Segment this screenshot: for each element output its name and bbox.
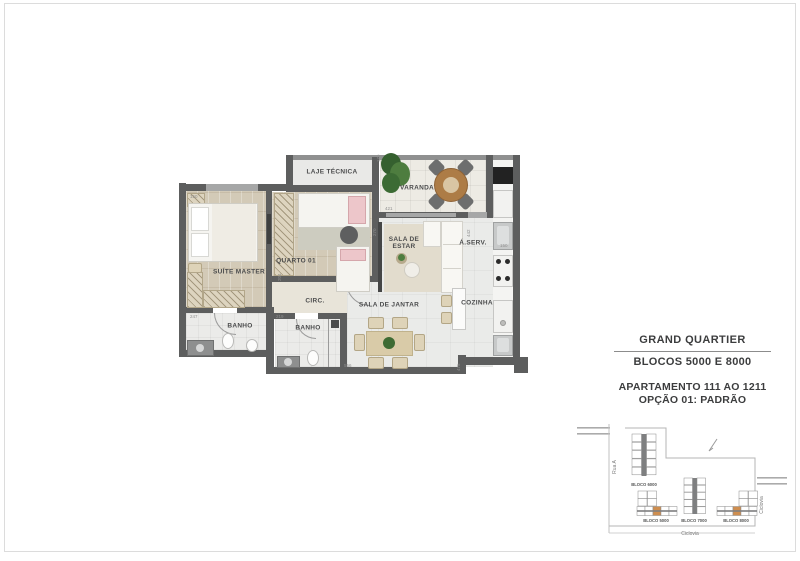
- banho1-toilet: [222, 333, 234, 349]
- suite-wardrobe-left: [187, 272, 203, 308]
- dining-centerpiece: [383, 337, 395, 349]
- burner-3: [496, 276, 501, 281]
- bloco-8000-label: BLOCO 8000: [723, 518, 749, 523]
- dining-chair-3: [368, 357, 384, 369]
- bloco-7000-label: BLOCO 7000: [681, 518, 707, 523]
- label-suite-master: SUÍTE MASTER: [213, 269, 265, 276]
- kitchen-cabinet: [493, 190, 513, 218]
- dim-179: 179: [376, 154, 381, 162]
- north-arrow-icon: [709, 439, 717, 451]
- plant-leaf-3: [382, 173, 400, 193]
- estar-tv-panel: [378, 222, 382, 292]
- fine-print-line: [757, 483, 787, 485]
- suite-wardrobe-bottom: [203, 290, 245, 308]
- project-title: GRAND QUARTIER: [600, 334, 785, 346]
- fine-print-line: [577, 433, 610, 435]
- window-suite: [206, 184, 258, 191]
- dining-chair-2: [392, 317, 408, 329]
- bloco-8000: [717, 491, 758, 516]
- bloco-5000-label: BLOCO 5000: [643, 518, 669, 523]
- banho2-shower-head: [331, 320, 339, 328]
- banho1-bidet: [246, 339, 258, 352]
- banho2-toilet: [307, 350, 319, 366]
- varanda-table-center: [443, 177, 459, 193]
- blocks-line: BLOCOS 5000 E 8000: [600, 356, 785, 368]
- dining-chair-6: [414, 334, 425, 351]
- plan-sheet: LAJE TÉCNICA VARANDA SUÍTE MASTER QUARTO…: [0, 0, 800, 561]
- dim-556: 556: [344, 363, 352, 368]
- dim-150-suite: 150: [190, 194, 198, 199]
- quarto-desk-chair: [340, 226, 358, 244]
- suite-tv-panel: [267, 214, 271, 244]
- label-varanda: VARANDA: [400, 185, 434, 192]
- dim-204: 204: [277, 273, 282, 281]
- dim-247: 247: [190, 314, 198, 319]
- dim-421: 421: [385, 206, 393, 211]
- dim-475: 475: [456, 363, 461, 371]
- site-plan: Rua A Ciclovia Ciclovia BLOCO 6000 BLOCO…: [575, 415, 800, 545]
- suite-pillow-1: [191, 207, 209, 231]
- kitchen-stool-1: [441, 295, 452, 307]
- label-circ: CIRC.: [305, 298, 324, 305]
- fine-print-line: [577, 427, 610, 429]
- fine-print-line: [757, 477, 787, 479]
- wall-left: [179, 183, 186, 357]
- kitchen-stool-2: [441, 312, 452, 324]
- quarto-pillow-2: [340, 249, 366, 261]
- wall-suite-quarto: [266, 191, 272, 307]
- label-banho-social: BANHO: [295, 325, 320, 332]
- wall-corner-block: [514, 357, 528, 373]
- bloco-6000: [632, 434, 656, 476]
- estar-plant: [398, 254, 405, 261]
- wall-varanda-kitchen: [486, 155, 493, 218]
- wall-right: [513, 155, 520, 362]
- wall-laje-left: [286, 155, 293, 190]
- oven: [493, 300, 513, 333]
- wall-laje-bottom: [286, 185, 378, 192]
- dim-270: 270: [372, 228, 377, 236]
- bloco-7000: [684, 478, 706, 514]
- street-rua-a: Rua A: [612, 460, 618, 474]
- label-sala-de-estar: SALA DE ESTAR: [387, 236, 421, 250]
- burner-1: [496, 259, 501, 264]
- kitchen-sink-basin: [497, 338, 509, 352]
- burner-2: [505, 259, 510, 264]
- title-divider: [614, 351, 771, 352]
- wall-bottom-main: [266, 367, 466, 374]
- estar-sofa: [441, 221, 463, 293]
- sliding-door-varanda: [386, 213, 456, 217]
- kitchen-peninsula: [452, 288, 466, 330]
- estar-chaise: [423, 221, 441, 247]
- dining-chair-4: [392, 357, 408, 369]
- kitchen-appliance-black: [493, 167, 513, 184]
- banho2-sink: [284, 358, 292, 366]
- label-laje-tecnica: LAJE TÉCNICA: [307, 169, 358, 176]
- cicloway-bottom-label: Ciclovia: [681, 531, 699, 537]
- dining-chair-5: [354, 334, 365, 351]
- dining-chair-1: [368, 317, 384, 329]
- dim-150-cozinha: 150: [500, 243, 508, 248]
- cicloway-right-label: Ciclovia: [759, 496, 765, 514]
- dim-219: 219: [276, 314, 284, 319]
- sofa-seam-2: [443, 268, 461, 269]
- oven-knob: [500, 320, 506, 326]
- dim-442: 442: [466, 229, 471, 237]
- bloco-5000: [637, 491, 677, 516]
- apartment-line: APARTAMENTO 111 AO 1211: [600, 381, 785, 393]
- bloco-6000-label: BLOCO 6000: [631, 482, 657, 487]
- estar-coffee-table: [404, 262, 420, 278]
- label-a-serv: Á.SERV.: [459, 240, 486, 247]
- suite-blanket: [212, 204, 256, 261]
- label-banho-suite: BANHO: [227, 323, 252, 330]
- wall-banho-divider: [266, 307, 274, 374]
- burner-4: [505, 276, 510, 281]
- label-sala-de-jantar: SALA DE JANTAR: [359, 302, 419, 309]
- sofa-seam-1: [443, 244, 461, 245]
- option-line: OPÇÃO 01: PADRÃO: [600, 394, 785, 406]
- banho1-sink: [196, 344, 204, 352]
- info-panel: GRAND QUARTIER BLOCOS 5000 E 8000 APARTA…: [600, 334, 785, 406]
- banho2-shower-glass: [328, 319, 329, 367]
- label-quarto-01: QUARTO 01: [276, 258, 316, 265]
- label-cozinha: COZINHA: [461, 300, 493, 307]
- door-aserv: [468, 212, 487, 218]
- suite-pillow-2: [191, 233, 209, 257]
- quarto-pillow-1: [348, 196, 366, 224]
